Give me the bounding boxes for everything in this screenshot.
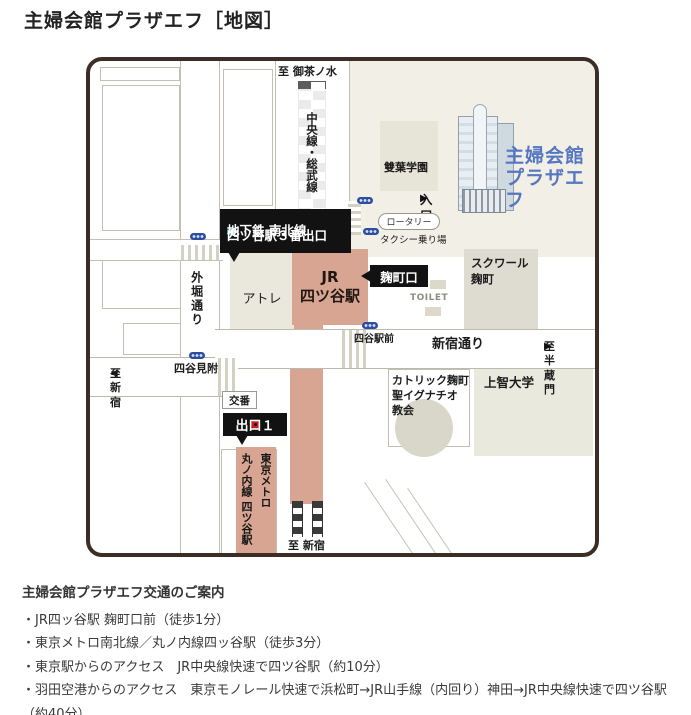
jr-yotsuya-station-building: JR 四ツ谷駅 [292, 249, 368, 325]
pointer-down-icon [236, 435, 248, 445]
traffic-signal-icon [357, 197, 373, 204]
access-heading: 主婦会館プラザエフ交通のご案内 [22, 582, 674, 606]
subway-namboku-exit-sign: 地下鉄 南北線 四ツ谷駅３番出口 [220, 209, 351, 253]
koban-police-box: 交番 [222, 391, 257, 409]
square-kojimachi-building: スクワール 麹町 [464, 249, 538, 335]
access-item: ・JR四ッ谷駅 麹町口前（徒歩1分） [22, 609, 674, 633]
chuo-sobu-line-label: 中央線・総武線 [296, 89, 328, 215]
taxi-stand-label: タクシー乗り場 [380, 235, 447, 247]
traffic-signal-icon [362, 322, 378, 329]
city-block [223, 69, 273, 206]
traffic-signal-icon [363, 228, 379, 235]
subway-exit-text: 四ツ谷駅３番出口 [227, 227, 327, 245]
access-item: ・羽田空港からのアクセス 東京モノレール快速で浜松町→JR山手線（内回り）神田→… [22, 679, 674, 715]
exit1-sign: 出口１ [223, 413, 287, 436]
diagonal-road-line [385, 479, 445, 557]
shinjuku-dori-label: 新宿通り [432, 337, 484, 354]
to-shinjuku-south-label: 至 新宿 [288, 539, 325, 553]
toilet-mark [425, 307, 441, 316]
pointer-down-icon [228, 252, 240, 262]
shinjuku-dori-road [215, 329, 595, 369]
access-item: ・東京メトロ南北線／丸ノ内線四ッ谷駅（徒歩3分） [22, 632, 674, 656]
rotary-label: ロータリー [378, 213, 440, 230]
to-ochanomizu-label: 至 御茶ノ水 [278, 65, 337, 79]
toilet-mark [430, 280, 446, 289]
railway-track-icon [312, 501, 323, 537]
plaza-ef-building-base [462, 189, 506, 213]
kojimachi-exit-sign: 麹町口 [370, 265, 428, 287]
yotsuya-ekimae-label: 四谷駅前 [354, 333, 394, 346]
sotobori-dori-label: 外堀通り [188, 271, 204, 327]
city-block [102, 85, 180, 231]
page: 主婦会館プラザエフ［地図］ 至 御茶ノ水 中央線・総武線 雙葉学園 [0, 0, 691, 715]
sophia-university-label: 上智大学 [484, 375, 534, 391]
futaba-gakuen-label: 雙葉学園 [384, 161, 428, 175]
exit1-text: 出口１ [235, 415, 274, 434]
railway-track-icon [292, 501, 303, 537]
arrow-right-icon: ▶ [544, 340, 552, 353]
access-item: ・東京駅からのアクセス JR中央線快速で四ツ谷駅（約10分） [22, 656, 674, 680]
yotsuya-mitsuke-label: 四谷見附 [174, 362, 218, 376]
arrow-right-icon: ▶ [420, 192, 428, 205]
access-info: 主婦会館プラザエフ交通のご案内 ・JR四ッ谷駅 麹町口前（徒歩1分） ・東京メト… [22, 582, 674, 715]
pointer-left-icon [361, 270, 371, 282]
shinjuku-west-text: 至 新宿 [110, 367, 121, 410]
page-title: 主婦会館プラザエフ［地図］ [24, 6, 284, 33]
futaba-gakuen-building [380, 121, 438, 191]
tokyo-metro-station-sign: 東京メトロ 丸ノ内線 四ツ谷駅 [236, 447, 276, 557]
city-block [123, 323, 182, 355]
traffic-signal-icon [189, 352, 205, 359]
traffic-signal-icon [190, 233, 206, 240]
crosswalk [181, 245, 219, 260]
catholic-church-label: カトリック麹町 聖イグナチオ 教会 [392, 373, 469, 418]
station-area-map: 至 御茶ノ水 中央線・総武線 雙葉学園 主婦会館 プラザエフ 入口▶ ロータリー… [86, 57, 599, 557]
plaza-ef-name-label: 主婦会館 プラザエフ [505, 146, 595, 212]
toilet-label: TOILET [410, 293, 448, 305]
city-block [100, 67, 180, 81]
